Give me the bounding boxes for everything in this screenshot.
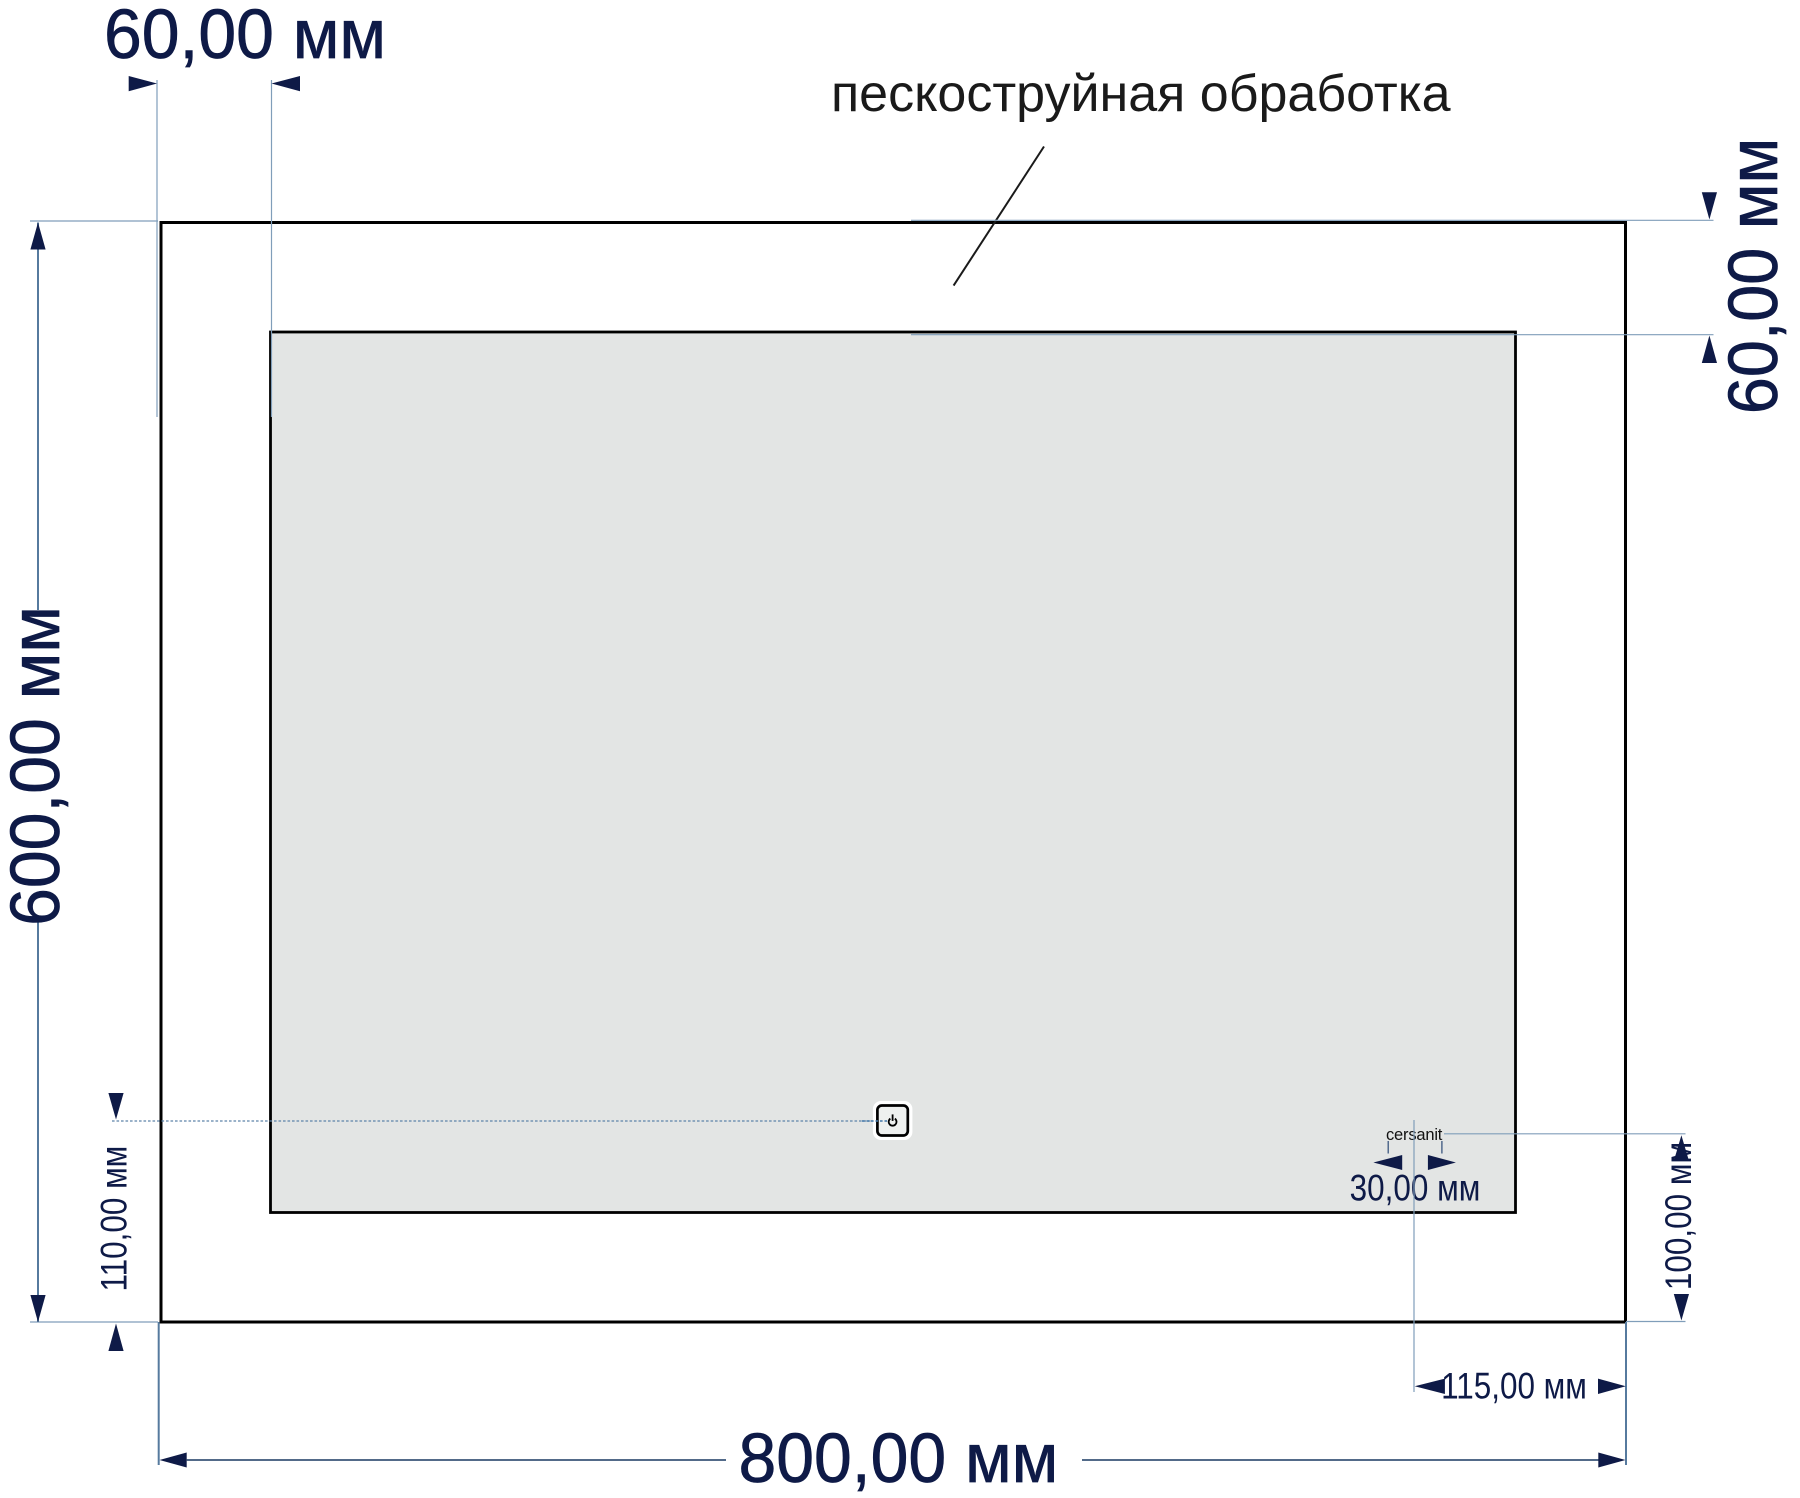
svg-text:800,00 мм: 800,00 мм: [738, 1419, 1058, 1497]
svg-text:110,00 мм: 110,00 мм: [94, 1146, 135, 1292]
svg-text:600,00 мм: 600,00 мм: [0, 606, 74, 926]
svg-text:60,00 мм: 60,00 мм: [104, 0, 386, 73]
svg-text:60,00 мм: 60,00 мм: [1714, 138, 1792, 414]
svg-text:100,00 мм: 100,00 мм: [1659, 1142, 1700, 1290]
svg-text:115,00 мм: 115,00 мм: [1441, 1366, 1587, 1407]
svg-text:30,00 мм: 30,00 мм: [1350, 1168, 1481, 1209]
svg-text:пескоструйная обработка: пескоструйная обработка: [831, 65, 1451, 123]
